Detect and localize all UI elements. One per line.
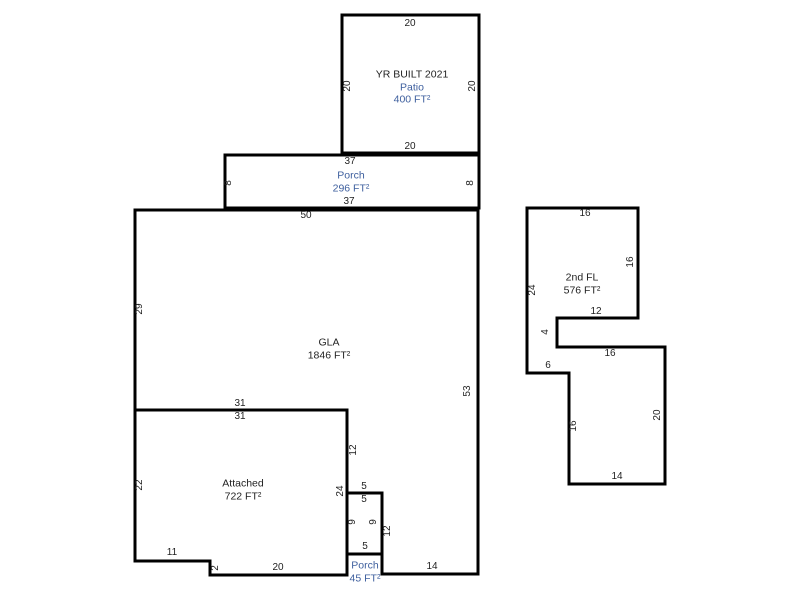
porch-lower-label: Porch 45 FT² [350, 560, 381, 585]
dimension-label-gla-left: 29 [135, 303, 145, 314]
dimension-label-second-floor-bottom: 14 [611, 472, 622, 482]
attached-area-text: 722 FT² [222, 490, 263, 503]
dimension-label-porch-upper-left: 8 [224, 180, 234, 186]
dimension-label-patio-bottom: 20 [404, 142, 415, 152]
dimension-label-porch-lower-right: 9 [369, 519, 379, 525]
dimension-label-porch-upper-bottom: 37 [343, 197, 354, 207]
dimension-label-second-floor-middle: 16 [604, 349, 615, 359]
dimension-label-gla-top: 50 [300, 211, 311, 221]
floor-plan-sketch: YR BUILT 2021 Patio 400 FT² Porch 296 FT… [0, 0, 800, 600]
gla-outline [135, 210, 478, 574]
dimension-label-porch-lower-top: 5 [361, 495, 367, 505]
dimension-label-attached-right: 24 [336, 485, 346, 496]
dimension-label-gla-step-lower: 12 [383, 525, 393, 536]
dimension-label-gla-bottom-left: 31 [234, 399, 245, 409]
dimension-label-attached-step: 2 [211, 565, 221, 571]
dimension-label-second-floor-top: 16 [579, 209, 590, 219]
dimension-label-porch-lower-bottom: 5 [362, 542, 368, 552]
dimension-label-second-floor-lower-right: 20 [653, 409, 663, 420]
dimension-label-attached-top: 31 [234, 412, 245, 422]
gla-name-text: GLA [308, 337, 351, 350]
dimension-label-patio-left: 20 [343, 80, 353, 91]
dimension-label-second-floor-left: 24 [528, 284, 538, 295]
patio-area-text: 400 FT² [376, 93, 449, 106]
dimension-label-porch-upper-right: 8 [466, 180, 476, 186]
patio-name-text: Patio [376, 81, 449, 94]
dimension-label-attached-bottom-right: 20 [272, 563, 283, 573]
dimension-label-gla-bottom-right: 14 [426, 562, 437, 572]
second-floor-area-text: 576 FT² [564, 284, 601, 297]
porch-upper-name-text: Porch [333, 170, 370, 183]
attached-garage-label: Attached 722 FT² [222, 478, 263, 503]
dimension-label-gla-step-upper: 12 [349, 444, 359, 455]
patio-year-built-text: YR BUILT 2021 [376, 68, 449, 81]
porch-upper-label: Porch 296 FT² [333, 170, 370, 195]
dimension-label-second-floor-lower-left: 16 [569, 420, 579, 431]
dimension-label-gla-step-middle: 5 [361, 482, 367, 492]
gla-label: GLA 1846 FT² [308, 337, 351, 362]
second-floor-name-text: 2nd FL [564, 272, 601, 285]
dimension-label-patio-top: 20 [404, 19, 415, 29]
second-floor-outline [527, 208, 665, 484]
porch-lower-name-text: Porch [350, 560, 381, 573]
dimension-label-porch-lower-left: 9 [348, 519, 358, 525]
dimension-label-attached-bottom-left: 11 [167, 548, 177, 558]
second-floor-label: 2nd FL 576 FT² [564, 272, 601, 297]
dimension-label-second-floor-upper-right: 16 [626, 256, 636, 267]
dimension-label-second-floor-notch-side: 4 [541, 329, 551, 335]
dimension-label-second-floor-lower-left-step: 6 [545, 361, 551, 371]
dimension-label-patio-right: 20 [468, 80, 478, 91]
porch-lower-area-text: 45 FT² [350, 572, 381, 585]
dimension-label-porch-upper-top: 37 [344, 157, 355, 167]
dimension-label-attached-left: 22 [135, 479, 145, 490]
dimension-label-gla-right: 53 [463, 385, 473, 396]
attached-name-text: Attached [222, 478, 263, 491]
patio-label: YR BUILT 2021 Patio 400 FT² [376, 68, 449, 106]
porch-upper-area-text: 296 FT² [333, 182, 370, 195]
dimension-label-second-floor-notch-top: 12 [590, 307, 601, 317]
gla-area-text: 1846 FT² [308, 349, 351, 362]
